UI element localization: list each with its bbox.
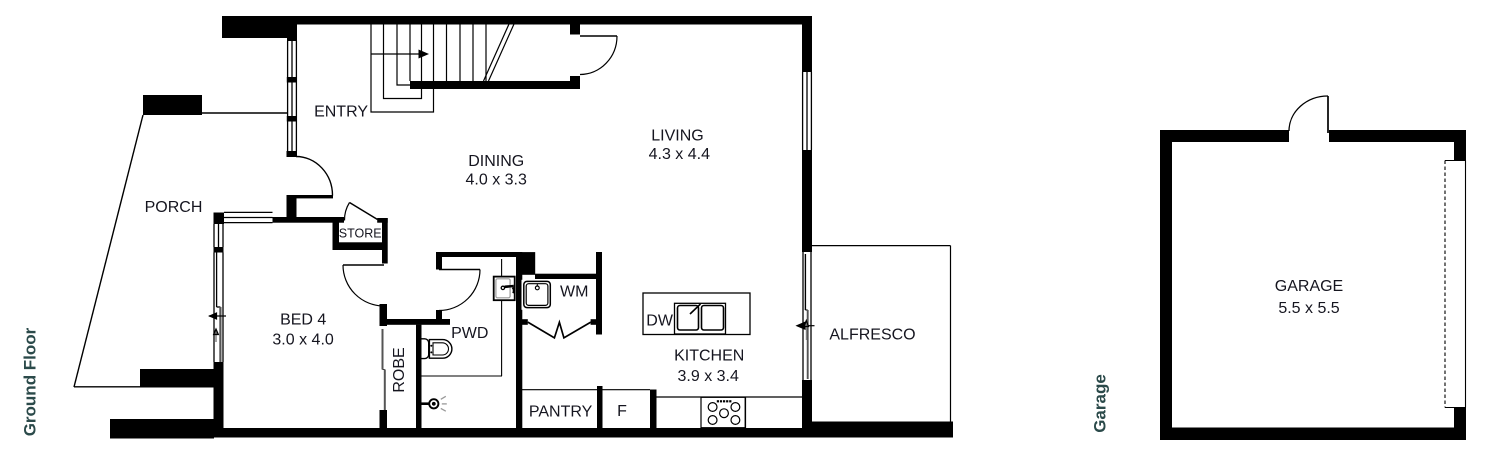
svg-text:DINING: DINING <box>468 153 524 170</box>
svg-text:3.9 x 3.4: 3.9 x 3.4 <box>678 368 739 385</box>
svg-text:ALFRESCO: ALFRESCO <box>829 327 915 344</box>
svg-text:F: F <box>617 403 627 420</box>
svg-text:4.3 x 4.4: 4.3 x 4.4 <box>649 146 710 163</box>
svg-text:ENTRY: ENTRY <box>314 104 368 121</box>
svg-text:LIVING: LIVING <box>651 128 703 145</box>
svg-text:WM: WM <box>560 283 588 300</box>
svg-text:3.0 x 4.0: 3.0 x 4.0 <box>272 332 333 349</box>
svg-text:KITCHEN: KITCHEN <box>674 347 744 364</box>
svg-text:Garage: Garage <box>1091 374 1110 433</box>
svg-text:BED 4: BED 4 <box>280 312 326 329</box>
svg-text:DW: DW <box>646 313 674 330</box>
svg-text:PORCH: PORCH <box>145 199 203 216</box>
svg-text:4.0 x 3.3: 4.0 x 3.3 <box>466 171 527 188</box>
svg-text:PANTRY: PANTRY <box>529 403 593 420</box>
svg-text:GARAGE: GARAGE <box>1275 278 1343 295</box>
svg-text:5.5 x 5.5: 5.5 x 5.5 <box>1278 300 1339 317</box>
svg-text:PWD: PWD <box>451 325 488 342</box>
svg-text:Ground Floor: Ground Floor <box>21 327 40 436</box>
svg-text:STORE: STORE <box>339 227 382 241</box>
svg-text:ROBE: ROBE <box>391 347 408 392</box>
